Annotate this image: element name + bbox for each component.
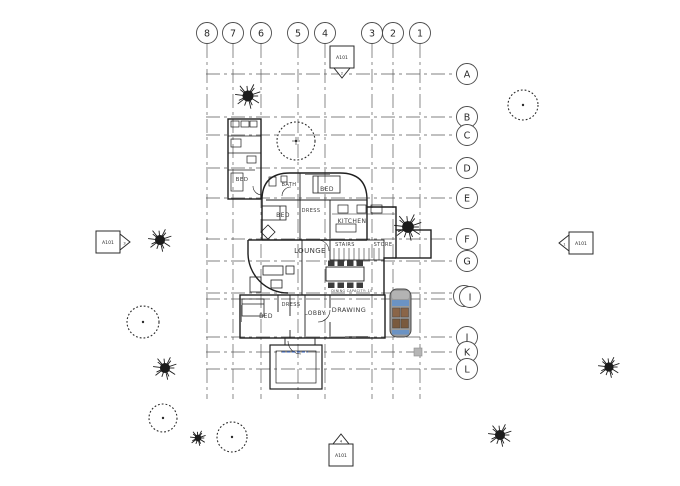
tree-conifer[interactable] (148, 229, 171, 251)
sheet-number: A101 (336, 55, 348, 61)
car-seat (393, 308, 401, 317)
svg-text:F: F (464, 234, 469, 245)
section-marker-4[interactable]: A1014 (329, 434, 353, 466)
section-marker-3[interactable]: A1013 (96, 231, 130, 253)
car-hood (392, 291, 409, 299)
room-label-kitchen: KITCHEN (338, 218, 367, 225)
grid-bubble-G[interactable]: G (457, 251, 478, 272)
svg-text:2: 2 (390, 28, 396, 39)
car-seat (401, 319, 409, 328)
grid-bubble-2[interactable]: 2 (383, 23, 404, 44)
car-seat (401, 308, 409, 317)
room-label-bed: BED (236, 177, 249, 183)
grid-bubble-F[interactable]: F (457, 229, 478, 250)
svg-text:6: 6 (258, 28, 264, 39)
svg-text:7: 7 (230, 28, 236, 39)
section-marker-2[interactable]: A1012 (330, 46, 354, 78)
svg-text:4: 4 (322, 28, 328, 39)
tree-deciduous[interactable] (127, 306, 159, 338)
floor-plan-walls (228, 119, 431, 389)
tree-deciduous[interactable] (277, 122, 315, 160)
grid-bubble-6[interactable]: 6 (251, 23, 272, 44)
porch-outline (270, 345, 322, 389)
tree-conifer[interactable] (488, 424, 511, 446)
grid-bubble-C[interactable]: C (457, 125, 478, 146)
annotation-text: DINING CAPACITY: 10 (331, 289, 372, 293)
dining-table (326, 267, 364, 281)
svg-text:K: K (464, 347, 471, 358)
svg-text:D: D (463, 163, 470, 174)
tree-conifer[interactable] (190, 431, 206, 446)
section-markers-layer: A1012A1013A1011A1014 (96, 46, 593, 466)
grid-bubble-4[interactable]: 4 (315, 23, 336, 44)
svg-text:5: 5 (295, 28, 301, 39)
sheet-number: A101 (575, 241, 587, 247)
tree-conifer[interactable] (394, 214, 421, 240)
grid-bubble-1[interactable]: 1 (410, 23, 431, 44)
car-seat (393, 319, 401, 328)
room-label-bath: BATH (282, 182, 297, 188)
ground-pad[interactable] (414, 348, 422, 356)
room-label-bed: BED (276, 212, 290, 219)
grid-bubble-5[interactable]: 5 (288, 23, 309, 44)
room-label-bed: BED (259, 313, 273, 320)
car-rear-window (392, 330, 409, 335)
grid-bubble-8[interactable]: 8 (197, 23, 218, 44)
grid-bubble-7[interactable]: 7 (223, 23, 244, 44)
svg-text:C: C (464, 130, 471, 141)
grid-bubble-I[interactable]: I (460, 287, 481, 308)
dining-chairs (328, 261, 363, 289)
grid-bubbles-layer: 87654321ABCDEFGHIJKL (197, 23, 481, 380)
sheet-number: A101 (335, 453, 347, 459)
svg-text:8: 8 (204, 28, 210, 39)
svg-text:3: 3 (369, 28, 375, 39)
tree-conifer[interactable] (598, 357, 619, 378)
svg-text:B: B (464, 112, 471, 123)
grid-bubble-3[interactable]: 3 (362, 23, 383, 44)
svg-text:1: 1 (417, 28, 423, 39)
tree-conifer[interactable] (235, 84, 260, 108)
room-label-lobby: LOBBY (304, 310, 325, 317)
svg-text:E: E (464, 193, 470, 204)
tree-conifer[interactable] (153, 357, 176, 379)
grid-bubble-A[interactable]: A (457, 64, 478, 85)
floor-plan-drawing: A1012A1013A1011A1014 87654321ABCDEFGHIJK… (0, 0, 680, 486)
room-label-bed: BED (320, 186, 334, 193)
room-label-drawing: DRAWING (332, 306, 366, 314)
svg-text:I: I (469, 292, 472, 303)
plan-view-canvas: A1012A1013A1011A1014 87654321ABCDEFGHIJK… (0, 0, 680, 486)
car-windshield (392, 300, 409, 306)
tree-deciduous[interactable] (217, 422, 247, 452)
room-label-lounge: LOUNGE (294, 247, 326, 255)
tree-deciduous[interactable] (149, 404, 177, 432)
store-outline (396, 230, 431, 258)
room-label-dress: DRESS (302, 208, 321, 214)
upper-block-outline (262, 173, 367, 240)
svg-text:A: A (464, 69, 471, 80)
grid-bubble-E[interactable]: E (457, 188, 478, 209)
grid-bubble-L[interactable]: L (457, 359, 478, 380)
tree-deciduous[interactable] (508, 90, 538, 120)
svg-text:L: L (464, 364, 470, 375)
trees-layer (127, 84, 619, 452)
room-label-store: STORE (374, 242, 393, 248)
room-label-stairs: STAIRS (335, 242, 355, 248)
kitchen-island (336, 224, 356, 232)
car-top-view[interactable] (390, 289, 411, 337)
room-label-dress: DRESS (282, 302, 301, 308)
section-marker-1[interactable]: A1011 (559, 232, 593, 254)
grid-bubble-D[interactable]: D (457, 158, 478, 179)
svg-text:G: G (463, 256, 470, 267)
sheet-number: A101 (102, 240, 114, 246)
